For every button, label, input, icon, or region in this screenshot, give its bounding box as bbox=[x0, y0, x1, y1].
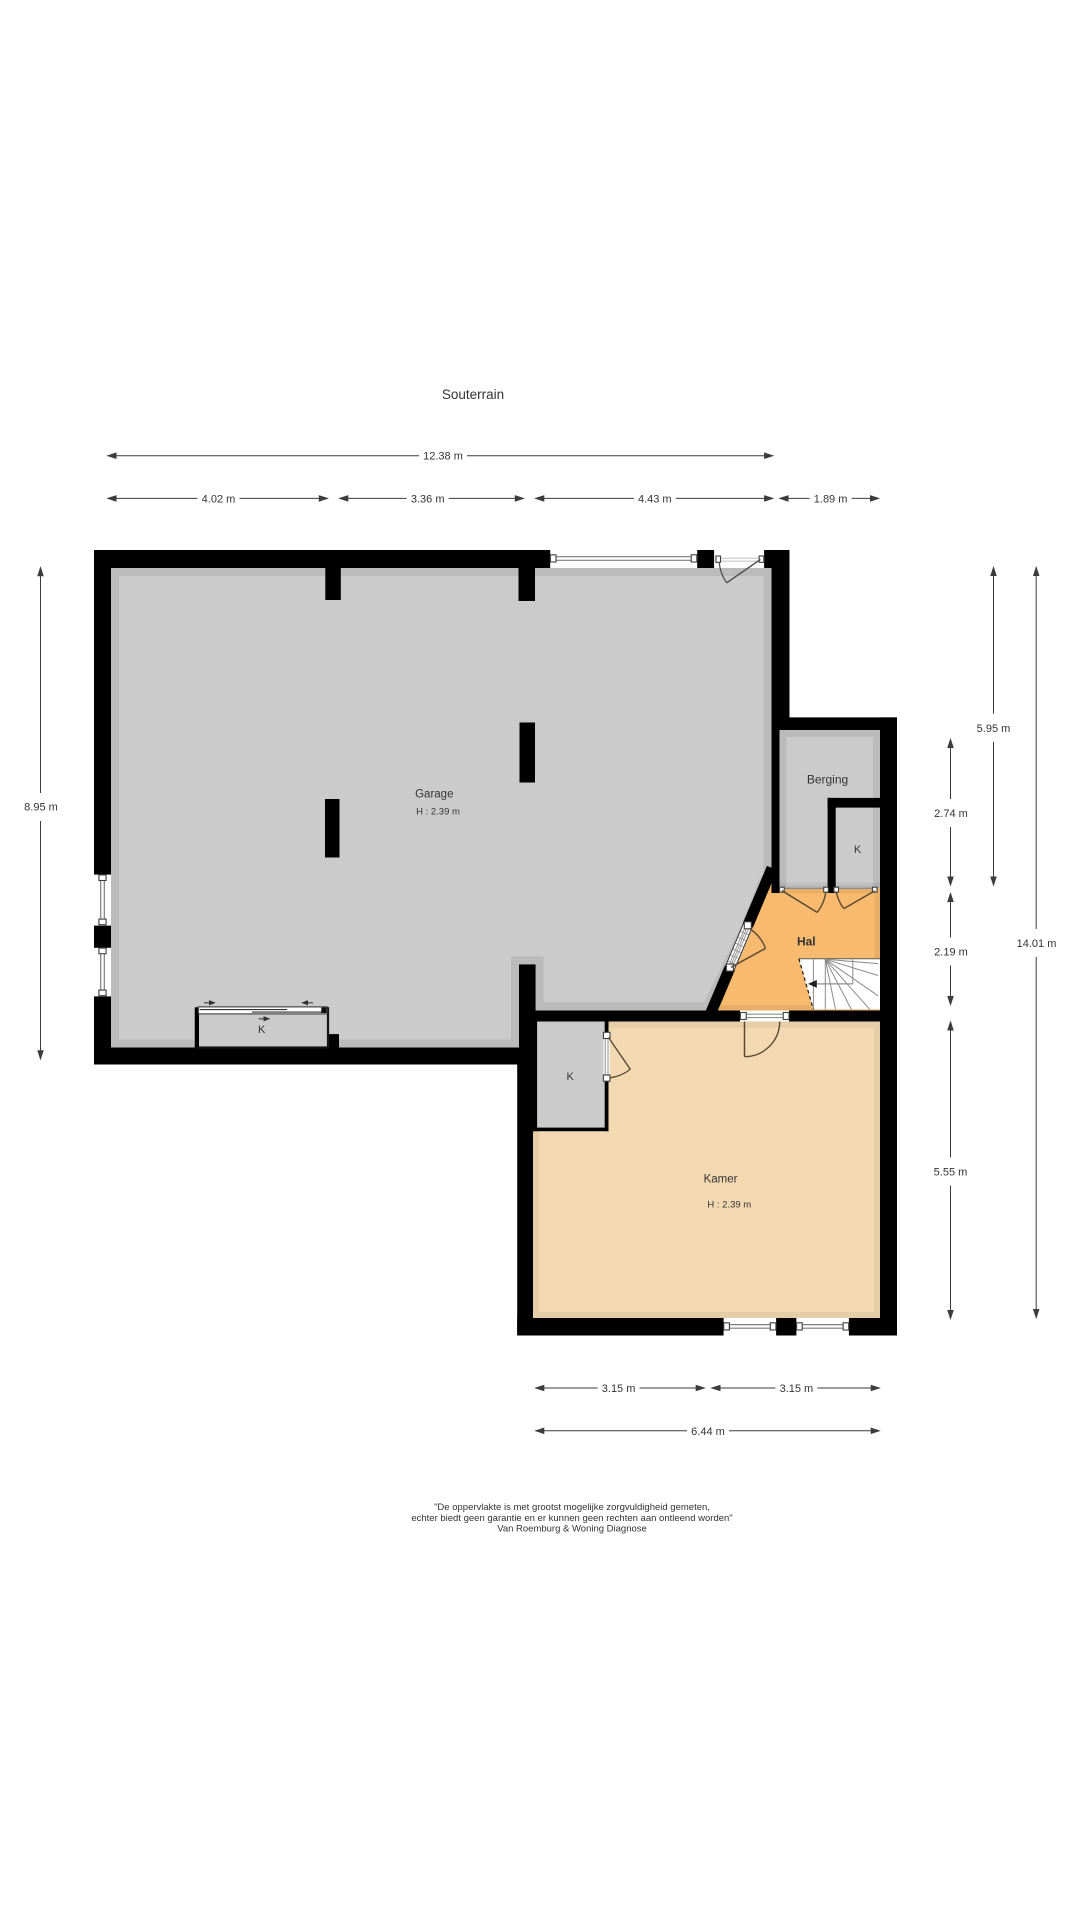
svg-text:3.36 m: 3.36 m bbox=[411, 493, 445, 505]
svg-text:14.01 m: 14.01 m bbox=[1017, 938, 1057, 950]
svg-text:8.95 m: 8.95 m bbox=[24, 802, 58, 814]
svg-text:5.55 m: 5.55 m bbox=[934, 1167, 968, 1179]
svg-text:1.89 m: 1.89 m bbox=[814, 493, 848, 505]
svg-text:H : 2.39 m: H : 2.39 m bbox=[707, 1200, 751, 1211]
svg-text:K: K bbox=[258, 1024, 266, 1036]
svg-text:Hal: Hal bbox=[797, 935, 816, 949]
svg-text:H : 2.39 m: H : 2.39 m bbox=[416, 807, 460, 818]
svg-text:K: K bbox=[854, 844, 862, 856]
svg-text:12.38 m: 12.38 m bbox=[423, 451, 463, 463]
svg-text:2.19 m: 2.19 m bbox=[934, 947, 968, 959]
svg-text:Kamer: Kamer bbox=[704, 1174, 738, 1186]
svg-text:3.15 m: 3.15 m bbox=[780, 1383, 814, 1395]
svg-text:5.95 m: 5.95 m bbox=[977, 723, 1011, 735]
svg-text:"De oppervlakte is met grootst: "De oppervlakte is met grootst mogelijke… bbox=[434, 1502, 710, 1513]
svg-text:Souterrain: Souterrain bbox=[442, 387, 504, 402]
svg-text:K: K bbox=[567, 1071, 575, 1083]
svg-text:6.44 m: 6.44 m bbox=[691, 1426, 725, 1438]
svg-text:Garage: Garage bbox=[415, 789, 453, 801]
svg-text:3.15 m: 3.15 m bbox=[602, 1383, 636, 1395]
svg-text:Berging: Berging bbox=[807, 773, 848, 787]
svg-text:echter biedt geen garantie en: echter biedt geen garantie en er kunnen … bbox=[411, 1513, 732, 1524]
svg-text:Van Roemburg & Woning Diagnose: Van Roemburg & Woning Diagnose bbox=[497, 1524, 647, 1535]
svg-text:2.74 m: 2.74 m bbox=[934, 808, 968, 820]
svg-text:4.02 m: 4.02 m bbox=[202, 493, 236, 505]
svg-text:4.43 m: 4.43 m bbox=[638, 493, 672, 505]
